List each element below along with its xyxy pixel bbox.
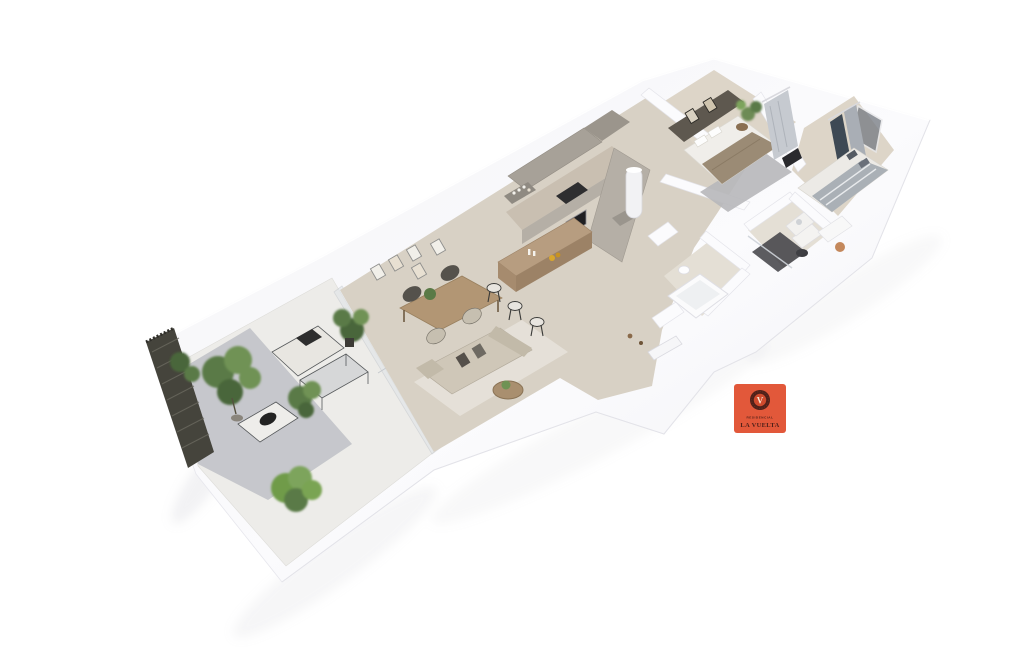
fruit-bowl: [549, 255, 555, 261]
coffee-table-plant: [502, 381, 511, 390]
logo-monogram: V: [757, 396, 764, 406]
sink: [796, 219, 802, 225]
logo-badge: V RESIDENCIAL LA VUELTA: [734, 384, 786, 433]
toilet: [679, 266, 690, 274]
water-heater: [626, 167, 642, 218]
logo-title: LA VUELTA: [740, 422, 779, 429]
floor-plan-render: V RESIDENCIAL LA VUELTA: [0, 0, 1024, 649]
round-decor: [835, 242, 845, 252]
entry-decor: [628, 334, 633, 339]
table-plant: [424, 288, 436, 300]
candles: [528, 249, 530, 255]
logo-subtitle: RESIDENCIAL: [746, 416, 773, 420]
